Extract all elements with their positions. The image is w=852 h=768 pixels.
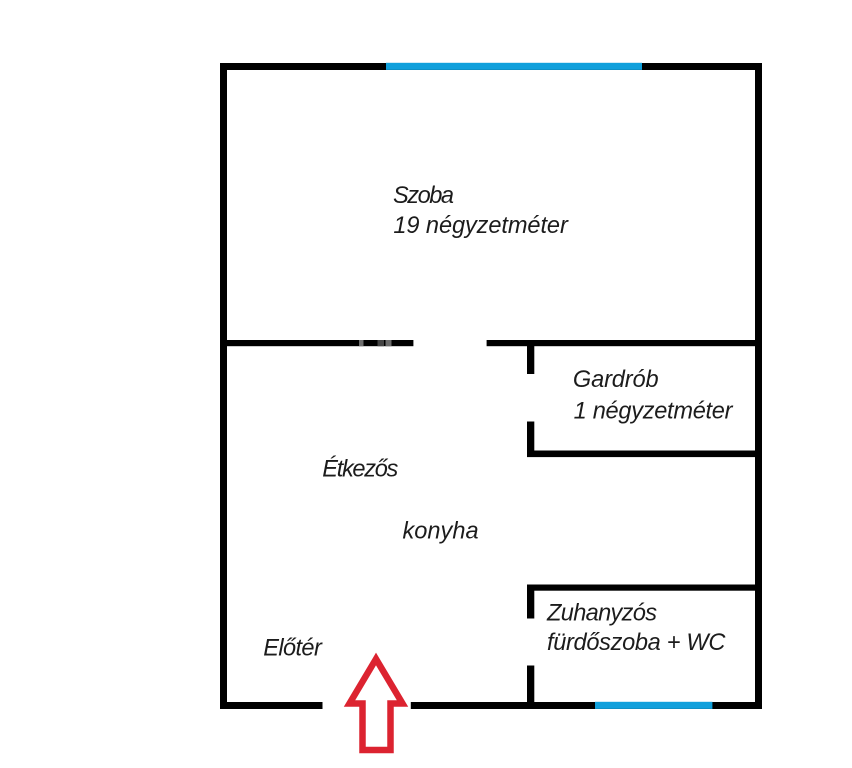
svg-text:1 négyzetméter: 1 négyzetméter <box>574 399 734 425</box>
svg-text:19 négyzetméter: 19 négyzetméter <box>393 213 569 239</box>
svg-text:Zuhanyzós: Zuhanyzós <box>546 601 657 627</box>
svg-text:Gardrób: Gardrób <box>573 367 659 393</box>
svg-text:konyha: konyha <box>403 518 479 544</box>
svg-text:Előtér: Előtér <box>263 636 323 662</box>
svg-text:Étkezős: Étkezős <box>322 455 398 482</box>
svg-text:fürdőszoba + WC: fürdőszoba + WC <box>547 630 726 656</box>
svg-text:Szoba: Szoba <box>393 183 454 209</box>
